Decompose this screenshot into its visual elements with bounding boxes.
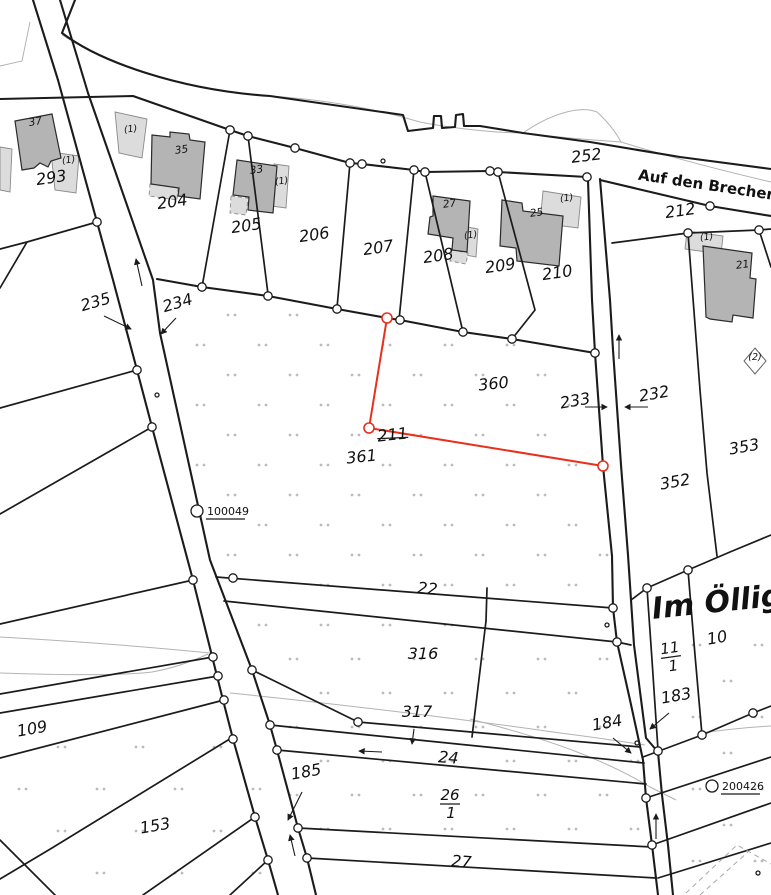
arrow-24-west	[359, 751, 382, 752]
building-label-35: 35	[174, 143, 189, 157]
parcel-label-353: 353	[727, 435, 760, 459]
parcel-label-22: 22	[417, 578, 439, 599]
building-label-27: 27	[442, 197, 457, 211]
parcel-label-361: 361	[345, 445, 377, 467]
survey-point-circle	[706, 780, 718, 792]
annex-label: (1)	[463, 229, 478, 242]
parcel-label-252: 252	[570, 144, 603, 167]
building-label-33: 33	[249, 163, 264, 177]
parcel-label-205: 205	[230, 214, 263, 237]
annex-label: (1)	[123, 123, 138, 136]
parcel-label-232: 232	[637, 382, 670, 406]
parcel-label-184: 184	[590, 711, 623, 735]
parcel-label-185: 185	[289, 760, 322, 784]
buildings	[0, 112, 756, 322]
survey-point-id-100049: 100049	[207, 505, 249, 518]
parcel-label-316: 316	[408, 644, 439, 663]
topographic-gray-lines	[0, 22, 771, 800]
parcel-label-183: 183	[659, 684, 692, 708]
svg-text:11: 11	[659, 638, 680, 658]
parcel-label-208: 208	[422, 244, 455, 267]
building-label-37: 37	[28, 115, 44, 129]
street-name-2: Im Öllig	[650, 576, 771, 626]
parcel-label-153: 153	[138, 814, 171, 838]
building-left-partial	[0, 147, 12, 192]
street-name-1: Auf den Brechen	[637, 166, 771, 205]
arrow-235	[104, 316, 131, 329]
parcel-label-234: 234	[160, 289, 195, 316]
arrow-234	[161, 318, 176, 334]
arrow-317	[412, 729, 414, 744]
parcel-label-109: 109	[15, 717, 48, 741]
building-label-21: 21	[735, 258, 750, 272]
parcel-label-352: 352	[658, 470, 691, 494]
cadastral-map: 2932042052062072082092102522122352342332…	[0, 0, 771, 895]
parcel-label-212: 212	[664, 199, 697, 222]
annex-label: (1)	[699, 231, 714, 244]
narrow-road-west	[588, 180, 658, 895]
survey-point-id-200426: 200426	[722, 780, 764, 793]
building-label-25: 25	[529, 206, 544, 220]
parcel-label-317: 317	[402, 702, 433, 721]
parcel-label-24: 24	[438, 747, 460, 767]
parcel-label-11-1: 111	[659, 638, 684, 676]
arrow-183	[650, 713, 669, 729]
svg-text:26: 26	[440, 786, 459, 804]
parcel-label-26-1: 261	[440, 786, 460, 822]
parcel-label-206: 206	[298, 223, 331, 246]
parcel-label-204: 204	[156, 190, 189, 213]
annex-label: (1)	[274, 175, 289, 188]
label-arrows	[104, 259, 669, 856]
parcel-label-211: 211	[376, 423, 408, 445]
annex-label: (1)	[559, 192, 574, 205]
symbol-label: (2)	[748, 352, 761, 363]
svg-text:1: 1	[446, 804, 456, 822]
parcel-lines	[0, 0, 771, 895]
boundary-points	[93, 126, 763, 875]
parcel-label-235: 235	[78, 288, 113, 315]
street-south-edge	[0, 96, 587, 177]
svg-text:1: 1	[667, 656, 679, 675]
parcel-label-209: 209	[484, 254, 517, 277]
parcel-label-233: 233	[558, 389, 591, 413]
parcel-label-207: 207	[362, 236, 396, 259]
survey-point-circle	[191, 505, 203, 517]
annex-label: (1)	[61, 154, 76, 167]
porch-33	[230, 196, 248, 215]
parcel-label-210: 210	[541, 261, 574, 284]
parcel-label-360: 360	[477, 372, 509, 394]
parcel-label-27: 27	[451, 851, 473, 871]
parcel-label-10: 10	[705, 626, 728, 648]
arrow-road-up-2	[136, 259, 142, 286]
map-canvas: 2932042052062072082092102522122352342332…	[0, 0, 771, 895]
arrow-road-up-3	[290, 835, 295, 856]
